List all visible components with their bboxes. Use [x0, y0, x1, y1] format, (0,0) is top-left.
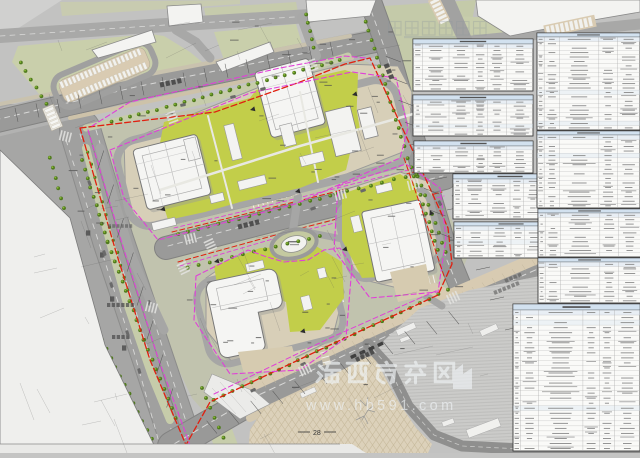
svg-text:www.hb591.com: www.hb591.com — [305, 398, 457, 414]
svg-text:28: 28 — [313, 430, 321, 437]
